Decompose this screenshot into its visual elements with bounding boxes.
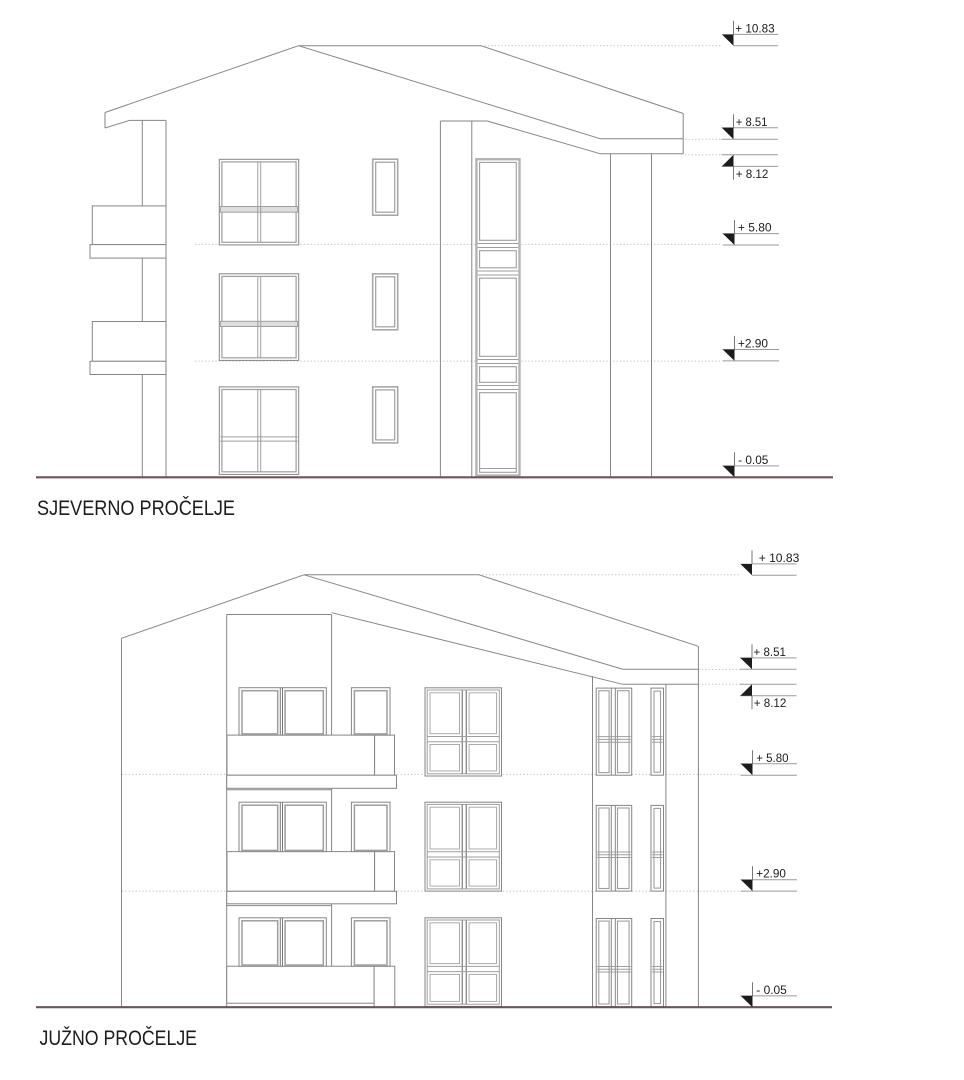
svg-text:+ 5.80: + 5.80 — [738, 221, 772, 235]
svg-text:+2.90: +2.90 — [738, 337, 768, 351]
svg-text:+ 10.83: + 10.83 — [735, 21, 775, 35]
svg-text:- 0.05: - 0.05 — [738, 453, 768, 467]
svg-text:+ 5.80: + 5.80 — [756, 751, 788, 765]
svg-text:SJEVERNO PROČELJE: SJEVERNO PROČELJE — [37, 495, 235, 520]
svg-text:+ 8.51: + 8.51 — [736, 115, 768, 129]
svg-text:- 0.05: - 0.05 — [756, 983, 787, 997]
svg-text:+ 8.51: + 8.51 — [754, 645, 787, 659]
svg-text:+2.90: +2.90 — [756, 867, 786, 881]
svg-text:JUŽNO PROČELJE: JUŽNO PROČELJE — [40, 1025, 198, 1050]
svg-text:+ 8.12: + 8.12 — [736, 167, 769, 181]
svg-text:+ 10.83: + 10.83 — [759, 551, 800, 565]
svg-text:+ 8.12: + 8.12 — [754, 696, 787, 710]
